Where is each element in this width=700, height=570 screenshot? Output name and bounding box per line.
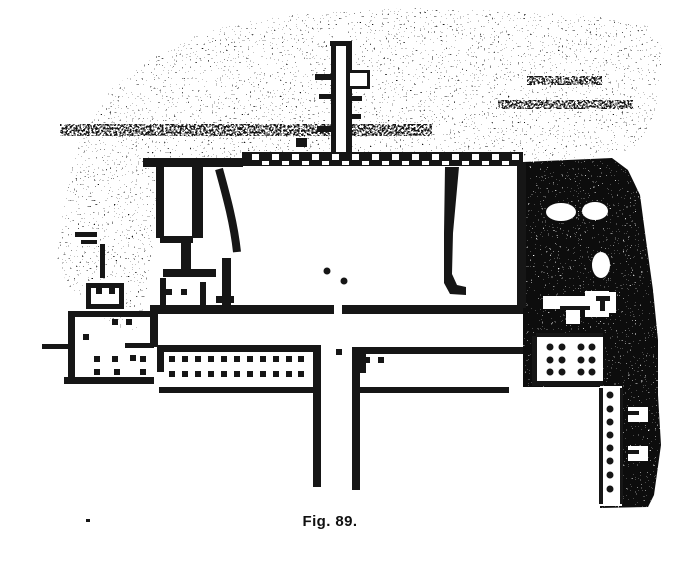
column-base <box>182 371 188 377</box>
niche <box>372 154 379 160</box>
wall <box>156 163 164 238</box>
column <box>547 369 554 376</box>
column <box>578 369 585 376</box>
wall <box>532 336 537 386</box>
column-base <box>298 371 304 377</box>
column-base <box>114 369 120 375</box>
niche <box>322 161 329 165</box>
niche <box>302 161 309 165</box>
column-base <box>208 371 214 377</box>
wall <box>222 258 231 305</box>
niche <box>492 154 499 160</box>
niche <box>292 154 299 160</box>
wall <box>296 138 307 147</box>
column-base <box>286 371 292 377</box>
column <box>341 278 348 285</box>
column <box>607 419 614 426</box>
terrain-texture-terrace-streak-2 <box>498 100 633 109</box>
column-base <box>96 288 102 294</box>
column <box>559 369 566 376</box>
niche <box>442 161 449 165</box>
wall <box>536 381 603 386</box>
column <box>589 369 596 376</box>
column-base <box>126 319 132 325</box>
column-base <box>247 371 253 377</box>
column-base <box>130 355 136 361</box>
column <box>607 445 614 452</box>
column <box>578 344 585 351</box>
column-base <box>195 356 201 362</box>
niche <box>282 161 289 165</box>
wall <box>560 306 590 310</box>
wall <box>68 311 154 317</box>
figure-caption: Fig. 89. <box>0 513 660 530</box>
column-base <box>169 371 175 377</box>
column-base <box>181 289 187 295</box>
slanted-wall <box>444 167 466 295</box>
wall <box>163 269 216 277</box>
column-base <box>221 356 227 362</box>
wall <box>42 344 68 349</box>
wall <box>600 301 605 311</box>
wall <box>359 347 523 354</box>
column <box>547 357 554 364</box>
column <box>607 458 614 465</box>
column-base <box>140 369 146 375</box>
column <box>607 432 614 439</box>
terrain-texture-terrace-streak-3 <box>527 76 602 85</box>
terrain-clearing <box>592 252 610 278</box>
wall <box>150 305 334 314</box>
column <box>578 357 585 364</box>
column-base <box>83 334 89 340</box>
wall <box>315 74 331 80</box>
room-floor <box>566 308 580 324</box>
wall <box>181 243 191 272</box>
column <box>589 357 596 364</box>
wall <box>342 305 523 314</box>
niche <box>272 154 279 160</box>
column-base <box>286 356 292 362</box>
wall <box>351 96 362 101</box>
column <box>607 406 614 413</box>
niche <box>362 161 369 165</box>
terrain-clearing <box>582 202 608 220</box>
column-base <box>94 369 100 375</box>
niche <box>332 154 339 160</box>
niche <box>472 154 479 160</box>
wall <box>192 165 203 238</box>
column <box>607 486 614 493</box>
terrain-texture-terrace-streak-1 <box>60 124 432 136</box>
wall <box>317 126 332 132</box>
wall <box>359 387 509 393</box>
column <box>607 472 614 479</box>
wall <box>159 387 317 393</box>
wall <box>75 232 97 237</box>
room-floor <box>350 73 367 86</box>
niche <box>412 154 419 160</box>
figure-container: Fig. 89. <box>0 0 700 570</box>
wall <box>620 388 623 504</box>
wall <box>517 162 526 308</box>
column-base <box>260 371 266 377</box>
column-base <box>221 371 227 377</box>
niche <box>462 161 469 165</box>
wall <box>157 345 164 372</box>
column-base <box>94 356 100 362</box>
niche <box>432 154 439 160</box>
niche <box>252 154 259 160</box>
column-base <box>234 371 240 377</box>
column <box>607 392 614 399</box>
wall <box>352 347 360 490</box>
column-base <box>364 357 370 363</box>
column-base <box>112 319 118 325</box>
wall <box>157 345 320 352</box>
wall <box>628 450 639 454</box>
wall <box>331 45 336 158</box>
wall <box>86 304 124 309</box>
column-base <box>140 356 146 362</box>
column <box>547 344 554 351</box>
terrain-clearing <box>546 203 576 221</box>
column-base <box>298 356 304 362</box>
wall <box>81 240 97 244</box>
column-base <box>169 356 175 362</box>
wall <box>64 377 154 384</box>
wall <box>351 114 361 119</box>
wall <box>160 236 193 243</box>
column-base <box>260 356 266 362</box>
column-base <box>195 371 201 377</box>
column-base <box>273 371 279 377</box>
wall <box>86 283 124 288</box>
column-base <box>166 289 172 295</box>
niche <box>512 154 519 160</box>
column-base <box>112 356 118 362</box>
column-base <box>234 356 240 362</box>
niche <box>502 161 509 165</box>
column-base <box>182 356 188 362</box>
niche <box>392 154 399 160</box>
column-base <box>336 349 342 355</box>
niche <box>382 161 389 165</box>
wall <box>346 45 352 158</box>
wall <box>68 311 75 381</box>
niche <box>342 161 349 165</box>
niche <box>422 161 429 165</box>
niche <box>402 161 409 165</box>
wall <box>596 296 610 301</box>
column-base <box>273 356 279 362</box>
column-base <box>109 288 115 294</box>
column <box>559 344 566 351</box>
wall <box>200 282 206 306</box>
niche <box>262 161 269 165</box>
column-base <box>378 357 384 363</box>
wall <box>628 411 639 415</box>
niche <box>452 154 459 160</box>
wall <box>599 388 603 504</box>
wall <box>100 244 105 278</box>
niche <box>312 154 319 160</box>
column-base <box>208 356 214 362</box>
wall <box>536 333 603 337</box>
wall <box>160 278 166 306</box>
niche <box>482 161 489 165</box>
column-base <box>247 356 253 362</box>
wall <box>125 343 154 348</box>
wall <box>313 345 321 487</box>
column <box>589 344 596 351</box>
column <box>324 268 331 275</box>
curved-wall <box>219 169 237 252</box>
wall <box>319 94 332 99</box>
temple-plan-drawing <box>0 0 700 570</box>
niche <box>352 154 359 160</box>
column <box>559 357 566 364</box>
